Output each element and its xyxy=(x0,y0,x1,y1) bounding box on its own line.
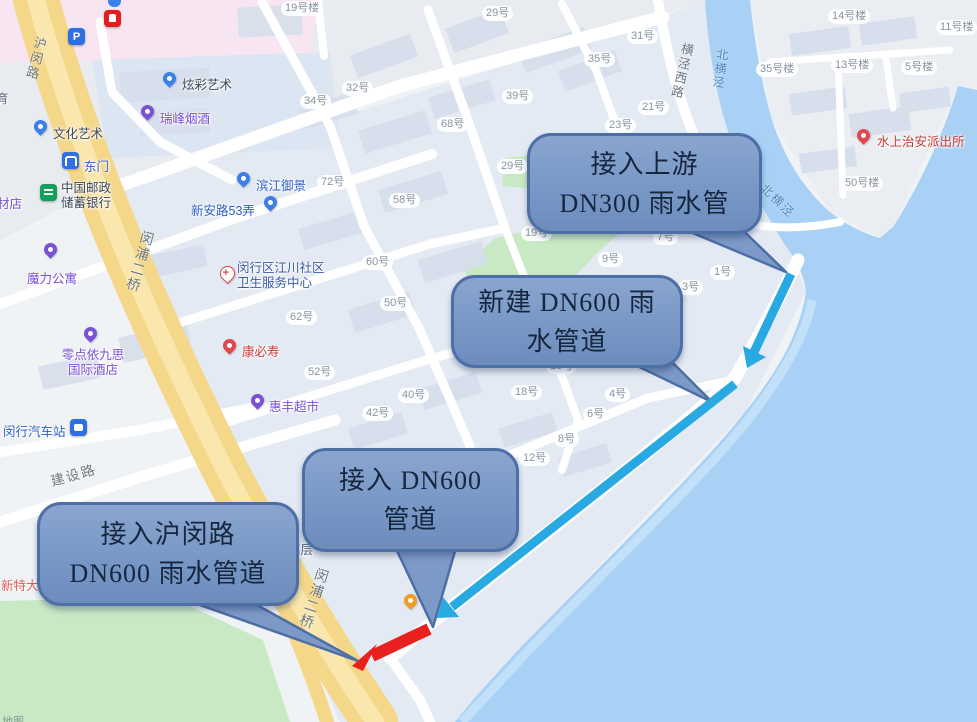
callout-line: 水管道 xyxy=(526,322,607,361)
callout-line: 接入上游 xyxy=(590,145,698,184)
callout-upstream-dn300: 接入上游 DN300 雨水管 xyxy=(527,133,762,234)
map-canvas[interactable]: 19号楼 29号 31号 35号 32号 34号 39号 68号 23号 21号… xyxy=(0,0,977,722)
callout-line: 新建 DN600 雨 xyxy=(478,283,656,322)
callout-line: DN600 雨水管道 xyxy=(69,554,266,593)
callout-humin-dn600: 接入沪闵路 DN600 雨水管道 xyxy=(37,502,299,606)
callout-line: 接入沪闵路 xyxy=(100,515,235,554)
callout-line: 接入 DN600 xyxy=(339,461,482,500)
callout-new-dn600-pipe: 新建 DN600 雨 水管道 xyxy=(451,275,683,368)
pipe-arrow-red-connection xyxy=(352,629,429,671)
pipe-arrow-upstream xyxy=(743,274,791,368)
callout-connect-dn600: 接入 DN600 管道 xyxy=(302,448,519,552)
callout-line: DN300 雨水管 xyxy=(559,184,729,223)
callout-line: 管道 xyxy=(383,500,437,539)
